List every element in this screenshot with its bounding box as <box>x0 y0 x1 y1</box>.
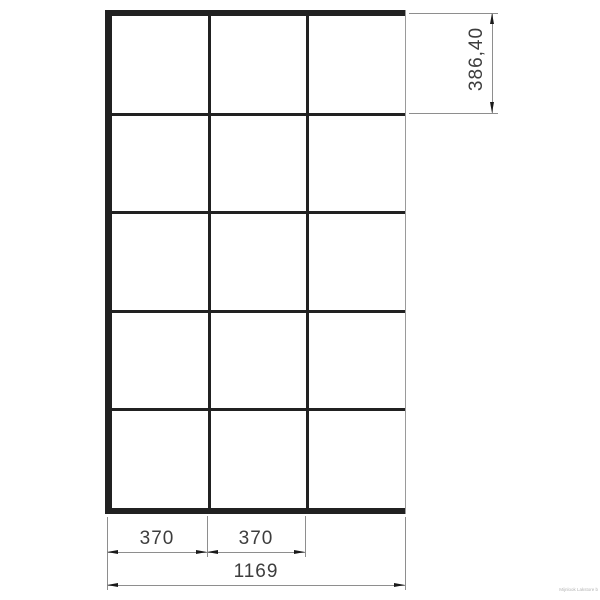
arrowhead-left-icon <box>107 583 118 587</box>
dimension-label-col2: 370 <box>207 529 305 549</box>
extension-line-bottom-right <box>405 517 406 590</box>
rail-3 <box>112 310 405 313</box>
panel-frame <box>105 10 406 514</box>
arrowhead-right-icon <box>196 550 207 554</box>
frame-right-edge-line <box>405 10 407 514</box>
dimension-label-total-width: 1169 <box>107 562 405 582</box>
dimension-line-total-width <box>107 585 405 586</box>
arrowhead-up-icon <box>490 13 494 24</box>
arrowhead-right-icon <box>394 583 405 587</box>
arrowhead-left-icon <box>107 550 118 554</box>
extension-line-mullion-2 <box>305 516 306 557</box>
dimension-label-row-height: 386,40 <box>467 27 487 91</box>
arrowhead-down-icon <box>490 102 494 113</box>
rail-1 <box>112 113 405 116</box>
mullion-1 <box>208 16 211 508</box>
extension-line-row1-right <box>409 113 498 114</box>
rail-4 <box>112 408 405 411</box>
mullion-2 <box>306 16 309 508</box>
dimension-line-row-height <box>492 13 493 113</box>
watermark-text: Mijnlook Lakstore b <box>548 587 598 592</box>
arrowhead-left-icon <box>207 550 218 554</box>
frame-top-bar <box>105 10 406 16</box>
dimension-label-col1: 370 <box>107 529 207 549</box>
rail-2 <box>112 211 405 214</box>
dimension-line-col2 <box>207 552 305 553</box>
arrowhead-right-icon <box>294 550 305 554</box>
frame-left-bar <box>105 10 112 514</box>
dimension-line-col1 <box>107 552 207 553</box>
extension-line-top-right <box>409 13 498 14</box>
frame-bottom-bar <box>105 508 406 514</box>
drawing-canvas: 386,40 370 370 1169 Mijnlook Lakstore b <box>0 0 600 600</box>
